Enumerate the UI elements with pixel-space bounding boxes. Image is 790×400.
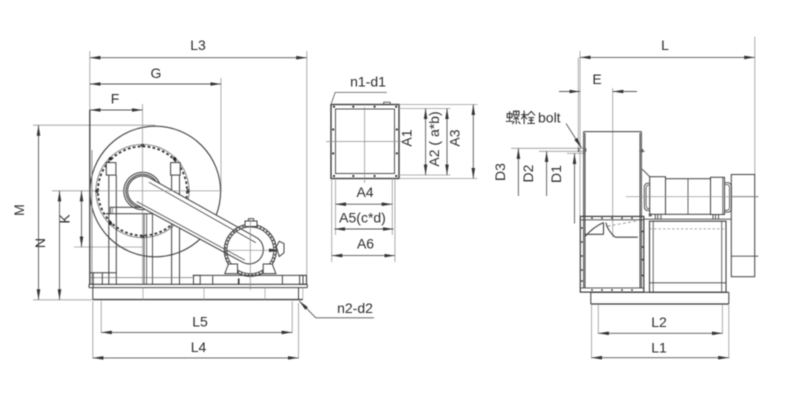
svg-text:F: F: [111, 91, 120, 107]
svg-text:A3: A3: [447, 129, 463, 146]
svg-text:L1: L1: [651, 340, 667, 356]
svg-text:G: G: [151, 65, 162, 81]
svg-text:L4: L4: [191, 339, 207, 355]
svg-text:A6: A6: [357, 236, 374, 252]
svg-text:A4: A4: [356, 184, 373, 200]
svg-text:E: E: [592, 71, 601, 87]
svg-text:L5: L5: [192, 314, 208, 330]
svg-text:K: K: [57, 214, 73, 224]
svg-text:N: N: [32, 238, 48, 248]
svg-text:L3: L3: [190, 37, 206, 53]
svg-text:n1-d1: n1-d1: [350, 74, 386, 90]
svg-text:D1: D1: [548, 165, 564, 183]
svg-text:n2-d2: n2-d2: [337, 300, 373, 316]
svg-text:A5(c*d): A5(c*d): [339, 210, 386, 226]
svg-text:L2: L2: [651, 314, 667, 330]
svg-text:D2: D2: [520, 164, 536, 182]
svg-text:bolt: bolt: [538, 110, 561, 126]
svg-text:M: M: [11, 204, 27, 216]
svg-text:L: L: [661, 37, 669, 53]
svg-text:A2 ( a*b): A2 ( a*b): [426, 111, 442, 166]
svg-text:A1: A1: [399, 129, 415, 146]
svg-text:D3: D3: [492, 163, 508, 181]
